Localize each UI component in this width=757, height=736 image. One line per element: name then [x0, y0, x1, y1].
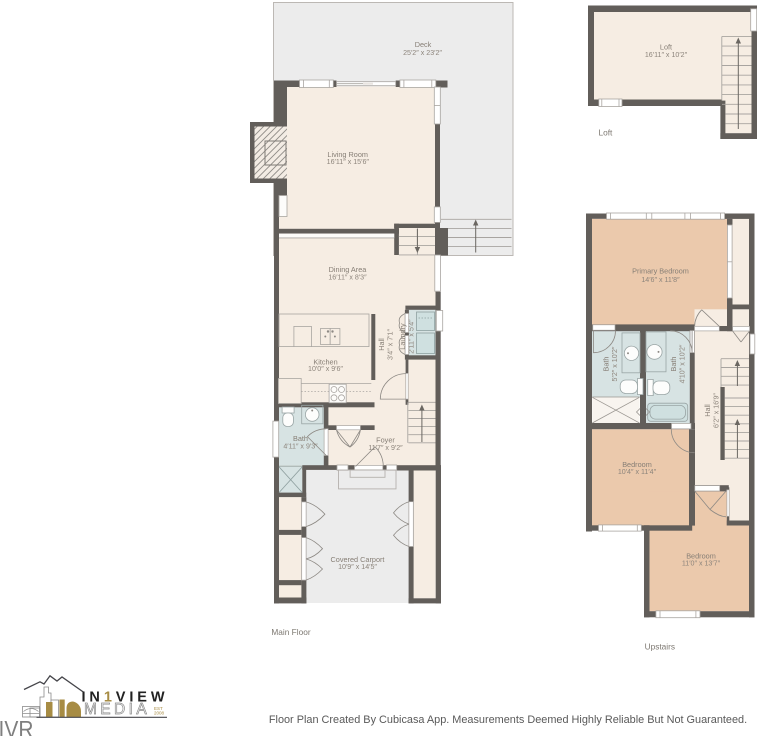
- svg-text:4′11″ x 9′3″: 4′11″ x 9′3″: [283, 442, 318, 450]
- svg-text:Bath: Bath: [669, 356, 678, 371]
- svg-text:Loft: Loft: [599, 128, 614, 138]
- svg-text:Deck: Deck: [415, 40, 432, 49]
- svg-text:2′11″ x 5′4″: 2′11″ x 5′4″: [408, 319, 416, 354]
- svg-text:10′4″ x 11′4″: 10′4″ x 11′4″: [618, 468, 657, 476]
- svg-text:14′6″ x 11′8″: 14′6″ x 11′8″: [641, 276, 680, 284]
- svg-text:Hall: Hall: [703, 404, 712, 417]
- svg-text:Upstairs: Upstairs: [645, 642, 675, 652]
- svg-text:Foyer: Foyer: [376, 435, 395, 444]
- svg-text:16′11″ x 15′6″: 16′11″ x 15′6″: [327, 158, 370, 166]
- svg-text:11′0″ x 13′7″: 11′0″ x 13′7″: [682, 560, 721, 568]
- svg-text:IVR: IVR: [0, 717, 34, 736]
- svg-text:MEDIA: MEDIA: [84, 701, 150, 718]
- svg-text:Loft: Loft: [660, 43, 672, 52]
- svg-text:Main Floor: Main Floor: [271, 627, 310, 637]
- svg-text:10′9″ x 14′5″: 10′9″ x 14′5″: [338, 563, 377, 571]
- svg-text:25′2″ x 23′2″: 25′2″ x 23′2″: [403, 49, 442, 57]
- svg-text:Hall: Hall: [377, 338, 386, 351]
- svg-text:2008: 2008: [154, 711, 165, 716]
- svg-text:Floor Plan Created By Cubicasa: Floor Plan Created By Cubicasa App. Meas…: [269, 714, 747, 726]
- svg-text:5′2″ x 10′2″: 5′2″ x 10′2″: [611, 346, 619, 381]
- svg-text:Bath: Bath: [602, 356, 611, 371]
- svg-text:10′0″ x 9′6″: 10′0″ x 9′6″: [308, 365, 343, 373]
- svg-text:11′7″ x 9′2″: 11′7″ x 9′2″: [368, 444, 403, 452]
- svg-text:4′10″ x 10′2″: 4′10″ x 10′2″: [679, 344, 687, 383]
- svg-text:16′11″ x 8′3″: 16′11″ x 8′3″: [328, 273, 367, 281]
- svg-text:3′4″ x 7′1″: 3′4″ x 7′1″: [387, 329, 395, 360]
- svg-text:Laundry: Laundry: [398, 323, 407, 350]
- svg-text:6′2″ x 16′9″: 6′2″ x 16′9″: [713, 393, 721, 428]
- svg-text:Primary Bedroom: Primary Bedroom: [632, 267, 689, 276]
- svg-text:16′11″ x 10′2″: 16′11″ x 10′2″: [645, 51, 688, 59]
